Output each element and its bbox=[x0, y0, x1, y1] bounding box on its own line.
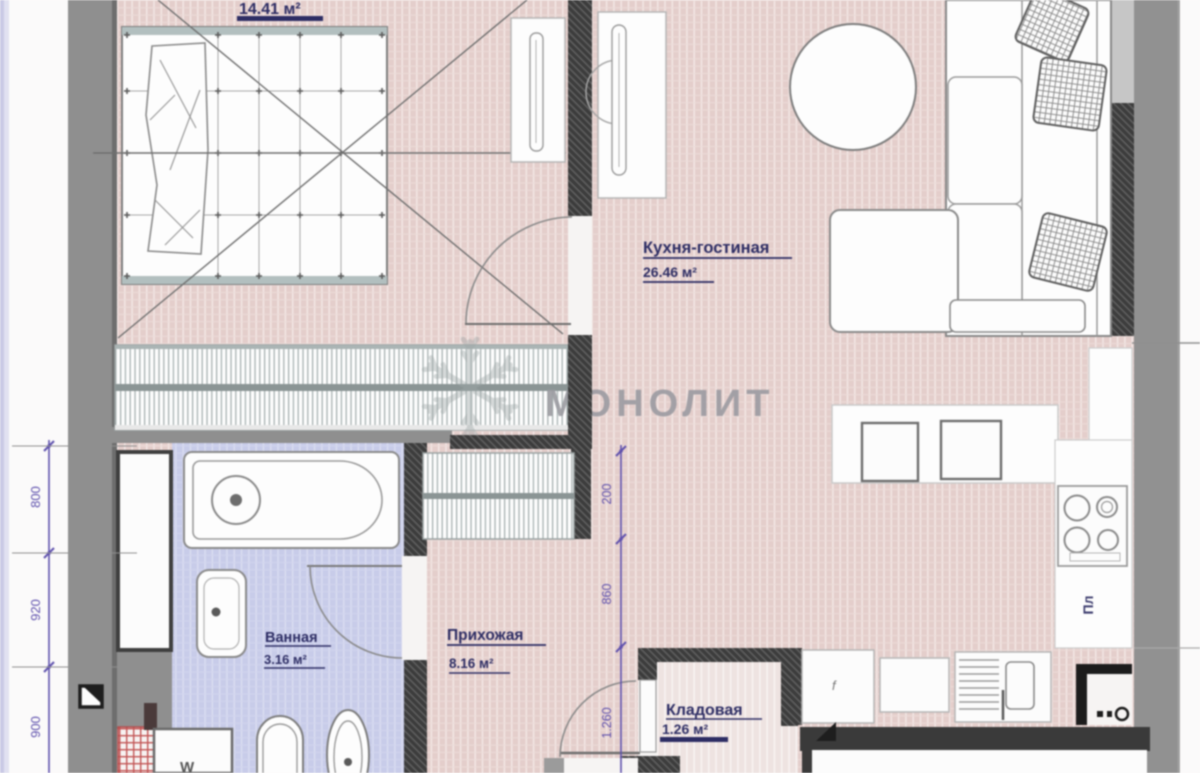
svg-text:Прихожая: Прихожая bbox=[447, 627, 523, 644]
svg-text:8.16 м²: 8.16 м² bbox=[449, 656, 494, 671]
svg-text:860: 860 bbox=[600, 584, 614, 605]
svg-text:920: 920 bbox=[28, 599, 43, 621]
svg-text:Кухня-гостиная: Кухня-гостиная bbox=[643, 239, 769, 257]
svg-text:200: 200 bbox=[600, 484, 614, 505]
svg-text:1.260: 1.260 bbox=[600, 707, 614, 738]
svg-text:W: W bbox=[180, 759, 195, 773]
svg-text:Ванная: Ванная bbox=[265, 630, 318, 646]
svg-text:800: 800 bbox=[28, 486, 43, 508]
svg-text:1.26 м²: 1.26 м² bbox=[662, 721, 708, 737]
svg-text:14.41 м²: 14.41 м² bbox=[239, 1, 301, 18]
svg-text:Кладовая: Кладовая bbox=[666, 702, 743, 719]
svg-text:26.46 м²: 26.46 м² bbox=[643, 264, 697, 280]
svg-text:3.16 м²: 3.16 м² bbox=[264, 652, 308, 667]
svg-text:Пл: Пл bbox=[1080, 596, 1096, 615]
svg-text:900: 900 bbox=[28, 716, 43, 738]
